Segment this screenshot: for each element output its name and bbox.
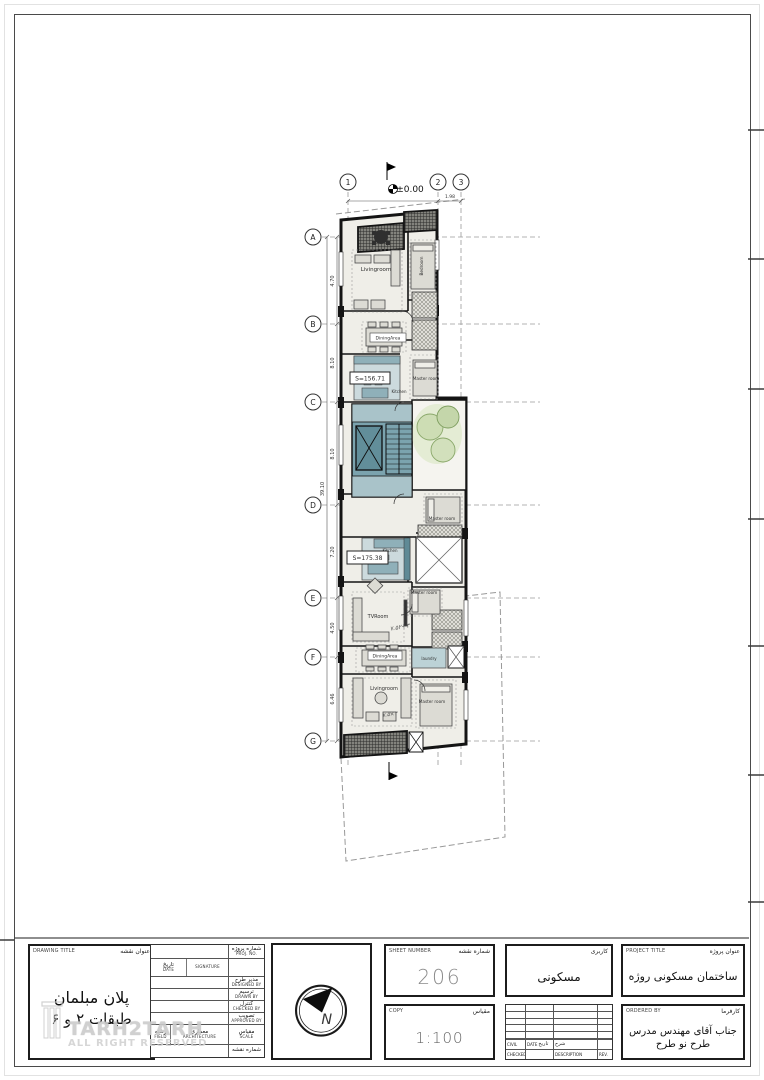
project-title-value: ساختمان مسکونی روژه <box>629 970 738 983</box>
scale-label-en: COPY <box>389 1008 403 1014</box>
grid-row-c: C <box>310 398 315 407</box>
room-label-master-3: Master room <box>411 590 437 595</box>
grid-row-d: D <box>310 501 316 510</box>
north-arrow-icon: N <box>273 945 370 1058</box>
level-marker: ±0.00 <box>389 185 425 196</box>
grid-row-g: G <box>310 737 316 746</box>
ordered-by-label-en: ORDERED BY <box>626 1008 661 1014</box>
ordered-by-box: ORDERED BY کارفرما جناب آقای مهندس مدرس … <box>621 1004 745 1060</box>
north-arrow-box: N <box>271 943 372 1060</box>
rev-date: DATEتاریخ <box>526 1039 554 1049</box>
scale-label-fa: مقیاس <box>473 1008 490 1015</box>
info-sheet-no: شماره نقشه <box>228 1045 264 1057</box>
tree-icon <box>431 438 455 462</box>
room-label-livingroom-1: Livingroom <box>361 267 392 273</box>
ordered-by-label-fa: کارفرما <box>721 1008 740 1015</box>
room-label-livingroom-2: Livingroom <box>370 686 398 692</box>
room-label-master-2: Master room <box>429 516 455 521</box>
info-scale: مقیاس SCALE <box>228 1025 264 1044</box>
room-label-bedroom-1: Bedroom <box>419 257 424 276</box>
scale-box: COPY مقیاس 1:100 <box>384 1004 495 1060</box>
rev-civil: CIVIL <box>506 1039 526 1049</box>
courtyard <box>412 400 466 490</box>
void-shaft <box>416 537 462 583</box>
info-designed-by: مدیر طرح DESIGNED BY <box>228 977 264 988</box>
area-label-1: S=156.71 <box>355 376 385 383</box>
level-zero-label: ±0.00 <box>396 185 424 195</box>
sheet-number-value: 206 <box>417 965 461 989</box>
tree-icon <box>437 406 459 428</box>
drawing-title-line2: طبقات ۲ و ۶ <box>51 1010 131 1028</box>
grid-row-f: F <box>311 653 315 662</box>
north-letter: N <box>321 1012 332 1028</box>
info-date: تاریخ DATE <box>151 959 187 976</box>
sheet-number-label-en: SHEET NUMBER <box>389 948 431 954</box>
room-label-master-1: Master room <box>413 376 439 381</box>
info-proj-no: شماره پروژه PROJ. NO. <box>228 945 264 958</box>
dim-e-f: 4.50 <box>330 622 336 633</box>
usage-box: کاربری مسکونی <box>505 944 613 997</box>
scale-value: 1:100 <box>415 1029 463 1047</box>
dim-b-c: 8.10 <box>330 357 336 368</box>
sheet-number-label-fa: شماره نقشه <box>458 948 490 955</box>
room-label-dining-1: DiningArea <box>376 336 401 342</box>
info-checked-by: کنترل CHECKED BY <box>228 1001 264 1012</box>
grid-row-e: E <box>311 594 316 603</box>
ordered-by-line1: جناب آقای مهندس مدرس <box>629 1026 737 1037</box>
info-field-value: معماری ARCHITECTURE <box>171 1025 228 1044</box>
drawing-title-label-en: DRAWING TITLE <box>33 948 75 954</box>
project-title-label-en: PROJECT TITLE <box>626 948 665 954</box>
dim-c-d: 8.10 <box>330 448 336 459</box>
revision-table: CIVIL DATEتاریخ شرح CHECKED DESCRIPTION … <box>505 1004 613 1060</box>
project-title-label-fa: عنوان پروژه <box>710 948 740 955</box>
grid-col-2: 2 <box>436 178 441 187</box>
rev-description: DESCRIPTION <box>554 1049 598 1059</box>
floor-plan: 1 2 3 A B C D E F G 4.70 8.10 8.10 <box>0 0 764 1080</box>
room-label-tvroom: TVRoom <box>367 614 389 620</box>
drawing-title-line1: پلان مبلمان <box>54 988 129 1007</box>
grid-row-a: A <box>310 233 316 242</box>
drawing-title-box: DRAWING TITLE عنوان نقشه پلان مبلمان طبق… <box>28 944 155 1060</box>
info-field: رشته FIELD <box>151 1025 171 1044</box>
room-label-master-4: Master room <box>419 699 445 704</box>
grid-col-1: 1 <box>346 178 351 187</box>
project-title-box: PROJECT TITLE عنوان پروژه ساختمان مسکونی… <box>621 944 745 997</box>
room-label-dining-2: DiningArea <box>373 654 398 660</box>
rev-checked: CHECKED <box>506 1049 526 1059</box>
terrace-table <box>374 230 388 244</box>
grid-col-3: 3 <box>459 178 464 187</box>
info-signature: SIGNATURE <box>187 959 228 976</box>
ordered-by-line2: طرح نو طرح <box>656 1039 710 1050</box>
sheet-number-box: SHEET NUMBER شماره نقشه 206 <box>384 944 495 997</box>
rev-rev: REV. <box>598 1049 612 1059</box>
dim-overall: 39.10 <box>320 482 326 496</box>
dim-top: 1.98 <box>445 194 455 200</box>
drawing-title-label-fa: عنوان نقشه <box>120 948 150 955</box>
dim-a-b: 4.70 <box>330 275 336 286</box>
usage-label-fa: کاربری <box>591 948 608 955</box>
section-marker-bottom <box>389 762 398 780</box>
stair-core <box>352 404 412 497</box>
grid-row-b: B <box>310 320 315 329</box>
room-label-laundry: laundry <box>421 656 437 661</box>
room-label-kitchen-1: Kitchen <box>391 389 406 394</box>
info-table: شماره پروژه PROJ. NO. تاریخ DATE SIGNATU… <box>150 944 265 1058</box>
laundry-room <box>412 646 464 668</box>
area-label-2: S=175.38 <box>353 555 383 562</box>
usage-value: مسکونی <box>537 970 580 984</box>
info-drawn-by: ترسیم DRAWN BY <box>228 989 264 1000</box>
dim-f-g: 6.46 <box>330 693 336 704</box>
drawing-sheet: 1 2 3 A B C D E F G 4.70 8.10 8.10 <box>0 0 764 1080</box>
section-marker-top <box>387 162 396 180</box>
dim-d-e: 7.20 <box>330 546 336 557</box>
rev-desc-fa: شرح <box>554 1039 598 1049</box>
info-approved-by: تصویب APPROVED BY <box>228 1013 264 1024</box>
